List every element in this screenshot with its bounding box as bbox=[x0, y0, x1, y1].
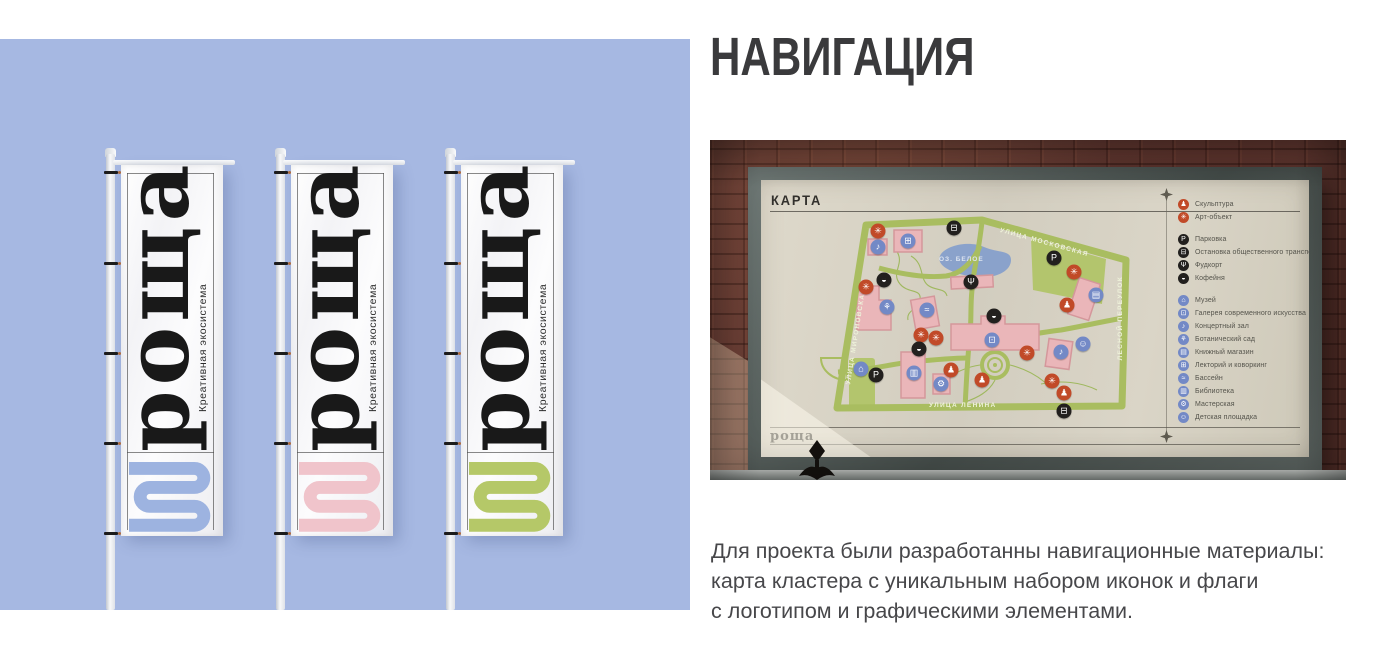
flag-rotated-text: роща Креативная экосистема bbox=[291, 173, 395, 460]
brand-tagline: Креативная экосистема bbox=[537, 173, 549, 412]
bus-stop-icon: ⊟ bbox=[947, 221, 962, 236]
art-object-icon: ✳ bbox=[1067, 265, 1082, 280]
street-label-lenina: УЛИЦА ЛЕНИНА bbox=[929, 402, 997, 409]
art-object-icon: ✳ bbox=[929, 331, 944, 346]
sculpture-icon: ♟ bbox=[1060, 298, 1075, 313]
art-object-icon: ✳ bbox=[1045, 374, 1060, 389]
bus-stop-icon: ⊟ bbox=[1057, 404, 1072, 419]
legend-item: ΨФудкорт bbox=[1178, 259, 1306, 272]
pole-clamp bbox=[444, 442, 458, 445]
pole-clamp bbox=[104, 442, 118, 445]
flag-pink: роща Креативная экосистема bbox=[276, 148, 416, 610]
pool-icon: ≈ bbox=[920, 303, 935, 318]
pole-clamp bbox=[274, 442, 288, 445]
pole-clamp bbox=[444, 532, 458, 535]
legend-label: Мастерская bbox=[1195, 401, 1235, 408]
compass-star-icon bbox=[1160, 430, 1173, 443]
sculpture-icon: ♟ bbox=[944, 363, 959, 378]
art-object-icon: ✳ bbox=[1020, 346, 1035, 361]
gallery-icon: ⊡ bbox=[985, 333, 1000, 348]
cluster-map: ОЗ. БЕЛОЕ УЛИЦА МОСКОВСКАЯ ЛЕСНОЙ ПЕРЕУЛ… bbox=[761, 212, 1167, 422]
coffee-icon: ◒ bbox=[1178, 273, 1189, 284]
flag-blue: роща Креативная экосистема bbox=[106, 148, 246, 610]
brick-wall-photo: КАРТА bbox=[710, 140, 1346, 480]
museum-icon: ⌂ bbox=[854, 362, 869, 377]
art-object-icon: ✳ bbox=[871, 224, 886, 239]
legend-label: Книжный магазин bbox=[1195, 349, 1254, 356]
legend-item: ⚙Мастерская bbox=[1178, 398, 1306, 411]
caption-text: Для проекта были разработанны навигацион… bbox=[711, 536, 1351, 626]
brand-tagline: Креативная экосистема bbox=[367, 173, 379, 412]
compass-star-icon bbox=[1160, 188, 1173, 201]
pole-clamp bbox=[274, 262, 288, 265]
pole-clamp bbox=[274, 171, 288, 174]
sculpture-icon: ♟ bbox=[1057, 386, 1072, 401]
legend-label: Кофейня bbox=[1195, 275, 1225, 282]
pool-icon: ≈ bbox=[1178, 373, 1189, 384]
legend-label: Детская площадка bbox=[1195, 414, 1257, 421]
brand-logo: роща bbox=[291, 173, 363, 460]
legend-item: ⚘Ботанический сад bbox=[1178, 333, 1306, 346]
playground-icon: ☺ bbox=[1076, 337, 1091, 352]
map-drawing bbox=[761, 212, 1167, 422]
coffee-icon: ◒ bbox=[987, 309, 1002, 324]
legend-label: Бассейн bbox=[1195, 375, 1223, 382]
legend-item: ♟Скульптура bbox=[1178, 198, 1306, 211]
map-board-frame: КАРТА bbox=[748, 167, 1322, 470]
legend-label: Скульптура bbox=[1195, 201, 1234, 208]
pole-clamp bbox=[104, 171, 118, 174]
playground-icon: ☺ bbox=[1178, 412, 1189, 423]
parking-icon: P bbox=[1047, 251, 1062, 266]
bus-stop-icon: ⊟ bbox=[1178, 247, 1189, 258]
legend-list: ♟Скульптура✳Арт-объектPПарковка⊟Остановк… bbox=[1178, 198, 1306, 424]
legend-label: Концертный зал bbox=[1195, 323, 1249, 330]
brand-tagline: Креативная экосистема bbox=[197, 173, 209, 412]
art-object-icon: ✳ bbox=[914, 328, 929, 343]
library-icon: ▥ bbox=[907, 366, 922, 381]
gallery-icon: ⊡ bbox=[1178, 308, 1189, 319]
legend-label: Фудкорт bbox=[1195, 262, 1222, 269]
art-object-icon: ✳ bbox=[1178, 212, 1189, 223]
botanical-garden-icon: ⚘ bbox=[1178, 334, 1189, 345]
legend-label: Ботанический сад bbox=[1195, 336, 1255, 343]
legend-item: ▥Библиотека bbox=[1178, 385, 1306, 398]
concert-hall-icon: ♪ bbox=[1178, 321, 1189, 332]
legend-item: ⊞Лекторий и коворкинг bbox=[1178, 359, 1306, 372]
legend-item: ⊡Галерея современного искусства bbox=[1178, 307, 1306, 320]
serpentine-graphic bbox=[469, 456, 555, 536]
wall-lamp-silhouette bbox=[792, 440, 842, 480]
legend-item: ⊟Остановка общественного транспорта bbox=[1178, 246, 1306, 259]
concert-hall-icon: ♪ bbox=[1054, 345, 1069, 360]
legend-divider bbox=[1166, 196, 1167, 432]
flag-green: роща Креативная экосистема bbox=[446, 148, 586, 610]
bookstore-icon: ▤ bbox=[1178, 347, 1189, 358]
pole-clamp bbox=[274, 532, 288, 535]
flag-rotated-text: роща Креативная экосистема bbox=[121, 173, 225, 460]
brand-logo: роща bbox=[121, 173, 193, 460]
botanical-garden-icon: ⚘ bbox=[880, 300, 895, 315]
bookstore-icon: ▤ bbox=[1089, 288, 1104, 303]
legend-item: ◒Кофейня bbox=[1178, 272, 1306, 285]
workshop-icon: ⚙ bbox=[1178, 399, 1189, 410]
pole-clamp bbox=[444, 262, 458, 265]
coffee-icon: ◒ bbox=[912, 342, 927, 357]
legend-item: ⌂Музей bbox=[1178, 294, 1306, 307]
pole-clamp bbox=[104, 352, 118, 355]
pole-clamp bbox=[104, 262, 118, 265]
museum-icon: ⌂ bbox=[1178, 295, 1189, 306]
flag-canvas: роща Креативная экосистема bbox=[291, 165, 393, 536]
food-court-icon: Ψ bbox=[964, 275, 979, 290]
legend-item: ☺Детская площадка bbox=[1178, 411, 1306, 424]
serpentine-graphic bbox=[129, 456, 215, 536]
flag-rotated-text: роща Креативная экосистема bbox=[461, 173, 565, 460]
legend-label: Галерея современного искусства bbox=[1195, 310, 1306, 317]
legend-item: ≈Бассейн bbox=[1178, 372, 1306, 385]
pole-clamp bbox=[444, 171, 458, 174]
legend-item: ♪Концертный зал bbox=[1178, 320, 1306, 333]
board-title: КАРТА bbox=[771, 192, 822, 208]
legend-label: Остановка общественного транспорта bbox=[1195, 249, 1309, 256]
legend-label: Библиотека bbox=[1195, 388, 1234, 395]
legend-label: Парковка bbox=[1195, 236, 1226, 243]
workshop-icon: ⚙ bbox=[934, 377, 949, 392]
sculpture-icon: ♟ bbox=[975, 373, 990, 388]
coffee-icon: ◒ bbox=[877, 273, 892, 288]
lecture-coworking-icon: ⊞ bbox=[901, 234, 916, 249]
flags-panel: роща Креативная экосистема bbox=[0, 39, 690, 610]
pole-clamp bbox=[444, 352, 458, 355]
lake-label: ОЗ. БЕЛОЕ bbox=[939, 256, 984, 263]
library-icon: ▥ bbox=[1178, 386, 1189, 397]
page: роща Креативная экосистема bbox=[0, 0, 1400, 669]
map-board: КАРТА bbox=[761, 180, 1309, 457]
sculpture-icon: ♟ bbox=[1178, 199, 1189, 210]
concert-hall-icon: ♪ bbox=[871, 240, 886, 255]
page-title: НАВИГАЦИЯ bbox=[710, 26, 974, 88]
legend-label: Лекторий и коворкинг bbox=[1195, 362, 1267, 369]
serpentine-graphic bbox=[299, 456, 385, 536]
parking-icon: P bbox=[1178, 234, 1189, 245]
legend-item: PПарковка bbox=[1178, 233, 1306, 246]
parking-icon: P bbox=[869, 368, 884, 383]
legend-item: ✳Арт-объект bbox=[1178, 211, 1306, 224]
street-label-lesnoy: ЛЕСНОЙ ПЕРЕУЛОК bbox=[1117, 276, 1124, 360]
pole-clamp bbox=[274, 352, 288, 355]
divider-line bbox=[770, 427, 1300, 428]
legend-item: ▤Книжный магазин bbox=[1178, 346, 1306, 359]
flag-canvas: роща Креативная экосистема bbox=[121, 165, 223, 536]
art-object-icon: ✳ bbox=[859, 280, 874, 295]
flag-canvas: роща Креативная экосистема bbox=[461, 165, 563, 536]
brand-logo: роща bbox=[461, 173, 533, 460]
legend-label: Музей bbox=[1195, 297, 1216, 304]
pole-clamp bbox=[104, 532, 118, 535]
food-court-icon: Ψ bbox=[1178, 260, 1189, 271]
lecture-coworking-icon: ⊞ bbox=[1178, 360, 1189, 371]
legend-label: Арт-объект bbox=[1195, 214, 1232, 221]
